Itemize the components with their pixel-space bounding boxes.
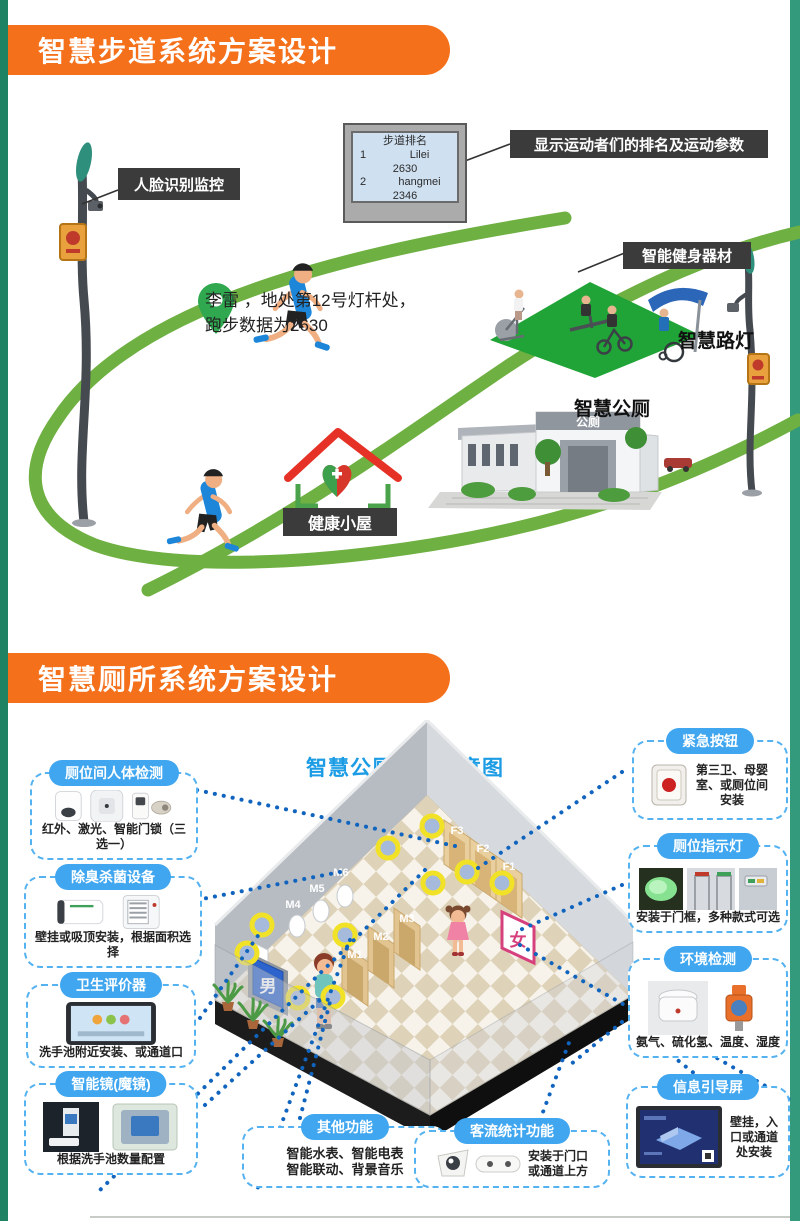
ranking-board: 步道排名 1 Lilei 2630 2 hangmei 2346 (343, 123, 467, 223)
feature-box-title: 信息引导屏 (657, 1074, 759, 1100)
stall-label-f2: F2 (477, 843, 490, 855)
feature-box-caption: 智能水表、智能电表 (286, 1146, 403, 1162)
feature-box-title: 其他功能 (301, 1114, 389, 1140)
feature-box-title: 厕位指示灯 (657, 833, 759, 859)
feature-box-title: 智能镜(魔镜) (55, 1071, 166, 1097)
runner-figure-bottom (166, 469, 239, 552)
stall-label-f3: F3 (451, 825, 464, 837)
feature-box-people-counter: 客流统计功能 安装于门口 或通道上方 (414, 1130, 610, 1188)
feature-box-title: 紧急按钮 (666, 728, 754, 754)
runner-info-text: 李雷 ，地处第12号灯杆处， 跑步数据为2630 (205, 289, 416, 338)
board-row: 1 Lilei (353, 149, 457, 163)
board-rank: 2 (353, 176, 382, 190)
feature-box-caption: 安装于门口 或通道上方 (528, 1149, 588, 1179)
feature-box-emergency-button: 紧急按钮 第三卫、母婴室、或厕位间安装 (632, 740, 788, 820)
bottom-divider (90, 1216, 790, 1218)
board-name: hangmei (382, 176, 457, 190)
feature-box-environment: 环境检测 氨气、硫化氢、温度、湿度 (628, 958, 788, 1058)
stall-label-m3: M3 (399, 913, 414, 925)
feature-box-caption: 氨气、硫化氢、温度、湿度 (636, 1035, 780, 1050)
people-counter-line1: 安装于门口 (528, 1149, 588, 1164)
feature-box-title: 客流统计功能 (454, 1118, 570, 1144)
health-hut-label: 健康小屋 (283, 508, 397, 536)
feature-box-title: 环境检测 (664, 946, 752, 972)
feature-box-title: 厕位间人体检测 (49, 760, 179, 786)
people-counter-devices-icon (436, 1148, 522, 1180)
infographic-page: 公厕 智慧步道系统 (0, 0, 800, 1221)
feature-box-title: 除臭杀菌设备 (55, 864, 171, 890)
feature-box-title: 卫生评价器 (60, 972, 162, 998)
feature-box-human-detect: 厕位间人体检测 红外、激光、智能门锁（三选一） (30, 772, 198, 860)
board-row: 2 hangmei (353, 176, 457, 190)
feature-box-caption: 第三卫、母婴室、或厕位间安装 (694, 763, 770, 808)
feature-box-caption: 红外、激光、智能门锁（三选一） (38, 822, 190, 852)
hygiene-rater-tablet-icon (59, 1002, 163, 1045)
feature-box-caption: 洗手池附近安装、或通道口 (39, 1045, 183, 1060)
human-detect-devices-icon (39, 790, 189, 822)
female-sign: 女 (510, 930, 527, 950)
feature-box-caption: 智能联动、背景音乐 (286, 1162, 403, 1178)
feature-box-smart-mirror: 智能镜(魔镜) 根据洗手池数量配置 (24, 1083, 198, 1175)
smart-mirror-images-icon (41, 1102, 181, 1152)
banner-toilet-text: 智慧厕所系统方案设计 (38, 658, 338, 698)
stall-label-m4: M4 (285, 899, 301, 911)
banner-toilet: 智慧厕所系统方案设计 (8, 653, 450, 703)
environment-sensors-icon (648, 981, 768, 1035)
feature-box-caption: 壁挂，入口或通道处安装 (728, 1115, 780, 1160)
stall-label-m5: M5 (309, 883, 324, 895)
runner-info-line1: 李雷 ，地处第12号灯杆处， (205, 289, 416, 314)
toilet-building: 公厕 (428, 412, 692, 510)
runner-info-line2: 跑步数据为2630 (205, 314, 416, 339)
feature-box-caption: 安装于门框，多种款式可选 (636, 910, 780, 925)
board-value: 2346 (353, 190, 457, 204)
people-counter-line2: 或通道上方 (528, 1164, 588, 1179)
emergency-button-icon (650, 763, 688, 807)
board-title: 步道排名 (353, 135, 457, 149)
board-rank: 1 (353, 149, 382, 163)
feature-box-info-screen: 信息引导屏 壁挂，入口或通道处安装 (626, 1086, 790, 1178)
face-recognition-label: 人脸识别监控 (118, 168, 240, 200)
feature-box-deodorize: 除臭杀菌设备 壁挂或吸顶安装，根据面积选择 (24, 876, 202, 968)
ranking-board-screen: 步道排名 1 Lilei 2630 2 hangmei 2346 (351, 131, 459, 203)
stall-indicator-images-icon (639, 868, 777, 910)
board-note-label: 显示运动者们的排名及运动参数 (510, 130, 768, 158)
feature-box-stall-indicator: 厕位指示灯 安装于门框，多种款式可选 (628, 845, 788, 933)
info-screen-icon (636, 1106, 722, 1168)
fitness-label: 智能健身器材 (623, 242, 751, 269)
stall-label-m2: M2 (373, 931, 388, 943)
stall-label-m1: M1 (347, 949, 362, 961)
smart-toilet-label: 智慧公厕 (574, 394, 650, 421)
deodorizer-devices-icon (38, 894, 188, 930)
board-name: Lilei (382, 149, 457, 163)
banner-walkway-text: 智慧步道系统方案设计 (38, 30, 338, 70)
board-value: 2630 (353, 163, 457, 177)
banner-walkway: 智慧步道系统方案设计 (8, 25, 450, 75)
feature-box-caption: 壁挂或吸顶安装，根据面积选择 (32, 930, 194, 960)
feature-box-caption: 根据洗手池数量配置 (57, 1152, 165, 1167)
feature-box-hygiene-rater: 卫生评价器 洗手池附近安装、或通道口 (26, 984, 196, 1068)
streetlamp-label: 智慧路灯 (678, 326, 754, 353)
walkway-path (35, 218, 800, 590)
